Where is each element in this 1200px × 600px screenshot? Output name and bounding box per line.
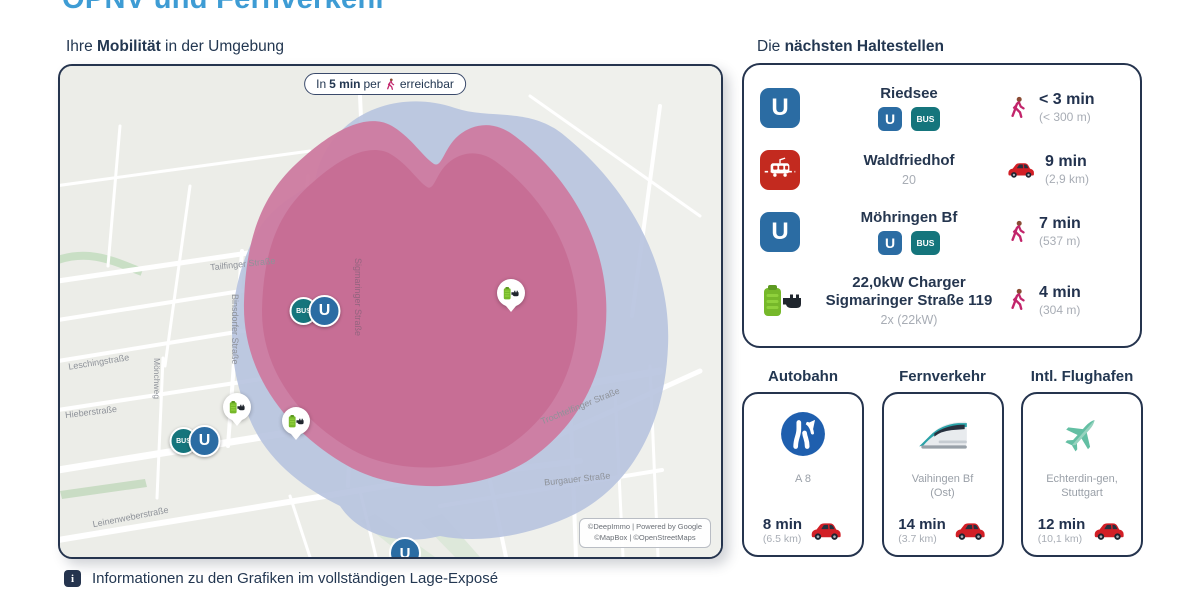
walk-icon [384,78,397,91]
stop-row-charger: 22,0kW Charger Sigmaringer Straße 119 2x… [760,274,1124,327]
u-bahn-icon: U [760,212,800,252]
flughafen-card: Echterdin-gen, Stuttgart 12 min (10,1 km… [1021,392,1143,557]
travel-time: 9 min [1045,153,1089,171]
bus-badge: BUS [911,107,940,131]
map-heading-bold: Mobilität [97,38,161,55]
ev-charger-glyph [760,280,804,320]
card-heading: Autobahn [768,368,838,385]
travel-distance: (6.5 km) [763,533,802,545]
map-heading-post: in der Umgebung [161,38,284,55]
ev-charger-icon [502,285,520,301]
ev-charger-icon [287,413,305,429]
card-name: Echterdin-gen, Stuttgart [1041,472,1123,501]
map-heading-pre: Ihre [66,38,97,55]
fernverkehr-card: Vaihingen Bf (Ost) 14 min (3.7 km) [882,392,1004,557]
stops-section-heading: Die nächsten Haltestellen [757,38,944,56]
stop-name: Möhringen Bf [818,209,1000,227]
stop-name: 22,0kW Charger Sigmaringer Straße 119 [818,274,1000,310]
bus-badge: BUS [911,231,940,255]
reachability-legend-pill: In 5 min per erreichbar [304,73,466,95]
attribution-line-1: ©DeepImmo | Powered by Google [588,522,702,533]
car-icon [809,520,843,541]
ubahn-marker-icon: U [189,425,221,457]
card-heading: Fernverkehr [899,368,986,385]
travel-distance: (3.7 km) [898,533,946,545]
map-section-heading: Ihre Mobilität in der Umgebung [66,38,284,56]
pill-mid: per [363,77,380,91]
train-icon [917,416,969,453]
stop-name: Riedsee [818,85,1000,103]
card-name: Vaihingen Bf (Ost) [902,472,984,501]
card-heading: Intl. Flughafen [1031,368,1134,385]
tram-glyph [763,153,797,187]
ev-charger-icon [760,280,804,320]
stop-line-number: 20 [818,173,1000,187]
map-marker-ev-charger[interactable] [497,279,525,307]
walk-icon [1006,96,1030,120]
tram-icon [760,150,800,190]
travel-time: 8 min [763,516,802,533]
ubahn-marker-icon: U [309,295,341,327]
nearest-stops-card: U Riedsee U BUS < 3 min (< 300 m) Waldfr… [742,63,1142,348]
map-marker-ev-charger[interactable] [223,393,251,421]
pill-post: erreichbar [400,77,454,91]
attribution-line-2: ©MapBox | ©OpenStreetMaps [588,533,702,544]
map-attribution: ©DeepImmo | Powered by Google ©MapBox | … [579,518,711,548]
card-name: A 8 [795,472,811,486]
stop-row-waldfriedhof: Waldfriedhof 20 9 min (2,9 km) [760,150,1124,190]
mobility-map[interactable]: Tailfinger Straße Binsdorfer Straße Lesc… [58,64,723,559]
street-label: Sigmaringer Straße [353,258,363,336]
long-distance-cards: Autobahn A 8 8 min (6.5 km) Fernverkehr … [742,368,1143,557]
u-bahn-badge: U [878,107,902,131]
stops-heading-bold: nächsten Haltestellen [785,38,944,55]
autobahn-column: Autobahn A 8 8 min (6.5 km) [742,368,864,557]
map-marker-bus-u[interactable]: BUS U [290,295,341,327]
footer-note: i Informationen zu den Grafiken im volls… [64,570,498,587]
charger-capacity: 2x (22kW) [818,313,1000,327]
autobahn-card: A 8 8 min (6.5 km) [742,392,864,557]
travel-distance: (2,9 km) [1045,172,1089,186]
walk-icon [1006,220,1030,244]
travel-time: 12 min [1038,516,1086,533]
street-label: Mönchweg [152,358,162,399]
motorway-icon [780,411,826,457]
u-bahn-icon: U [760,88,800,128]
stop-row-riedsee: U Riedsee U BUS < 3 min (< 300 m) [760,85,1124,131]
fernverkehr-column: Fernverkehr Vaihingen Bf (Ost) 14 min (3… [882,368,1004,557]
car-icon [953,520,987,541]
u-bahn-badge: U [878,231,902,255]
flughafen-column: Intl. Flughafen Echterdin-gen, Stuttgart… [1021,368,1143,557]
map-marker-ev-charger[interactable] [282,407,310,435]
ev-charger-icon [228,399,246,415]
stop-row-moehringen: U Möhringen Bf U BUS 7 min (537 m) [760,209,1124,255]
travel-distance: (< 300 m) [1039,110,1095,124]
stop-name: Waldfriedhof [818,152,1000,170]
travel-time: 7 min [1039,215,1081,233]
pill-duration: 5 min [329,77,360,91]
car-icon [1092,520,1126,541]
travel-time: < 3 min [1039,91,1095,109]
stops-heading-pre: Die [757,38,785,55]
map-canvas [60,66,721,557]
travel-distance: (304 m) [1039,303,1081,317]
travel-distance: (537 m) [1039,234,1081,248]
street-label: Binsdorfer Straße [230,294,240,365]
car-icon [1006,160,1036,179]
footer-note-text: Informationen zu den Grafiken im vollstä… [92,570,498,587]
info-icon: i [64,570,81,587]
pill-pre: In [316,77,326,91]
walk-icon [1006,288,1030,312]
page-title: ÖPNV und Fernverkehr [62,0,387,16]
plane-icon [1059,411,1105,457]
travel-distance: (10,1 km) [1038,533,1086,545]
travel-time: 14 min [898,516,946,533]
travel-time: 4 min [1039,284,1081,302]
map-marker-bus-u[interactable]: BUS U [170,425,221,457]
